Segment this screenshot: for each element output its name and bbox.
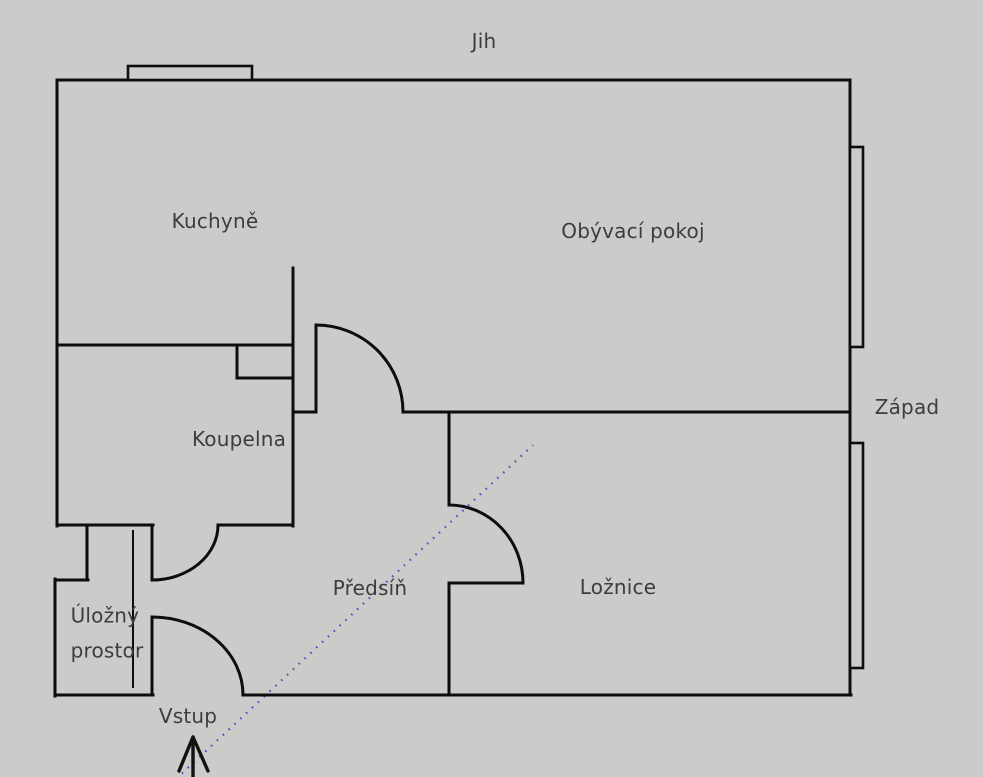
compass-label-west: Západ	[875, 395, 940, 419]
room-label-storage-line2: prostor	[71, 639, 144, 663]
hallway-door-arc	[316, 325, 403, 412]
entry-path-dotted-line	[176, 445, 533, 777]
room-label-hallway: Předsíň	[333, 576, 408, 600]
entrance-label: Vstup	[159, 704, 217, 728]
room-label-bedroom: Ložnice	[580, 575, 656, 599]
window-top	[128, 66, 252, 80]
room-label-kitchen: Kuchyně	[172, 209, 259, 233]
vent-shaft-box	[237, 345, 293, 378]
floor-plan-drawing	[0, 0, 983, 777]
room-label-storage: Úložný prostor	[71, 604, 144, 663]
entrance-arrow-icon	[179, 737, 208, 777]
compass-label-south: Jih	[472, 29, 497, 53]
bathroom-door-arc	[152, 525, 218, 580]
room-label-storage-line1: Úložný	[71, 604, 140, 628]
room-label-living-room: Obývací pokoj	[561, 219, 704, 243]
bedroom-door-arc	[449, 505, 523, 583]
window-bedroom	[850, 443, 863, 668]
window-livingroom	[850, 147, 863, 347]
room-label-bathroom: Koupelna	[192, 427, 286, 451]
entrance-door-arc	[152, 617, 243, 695]
